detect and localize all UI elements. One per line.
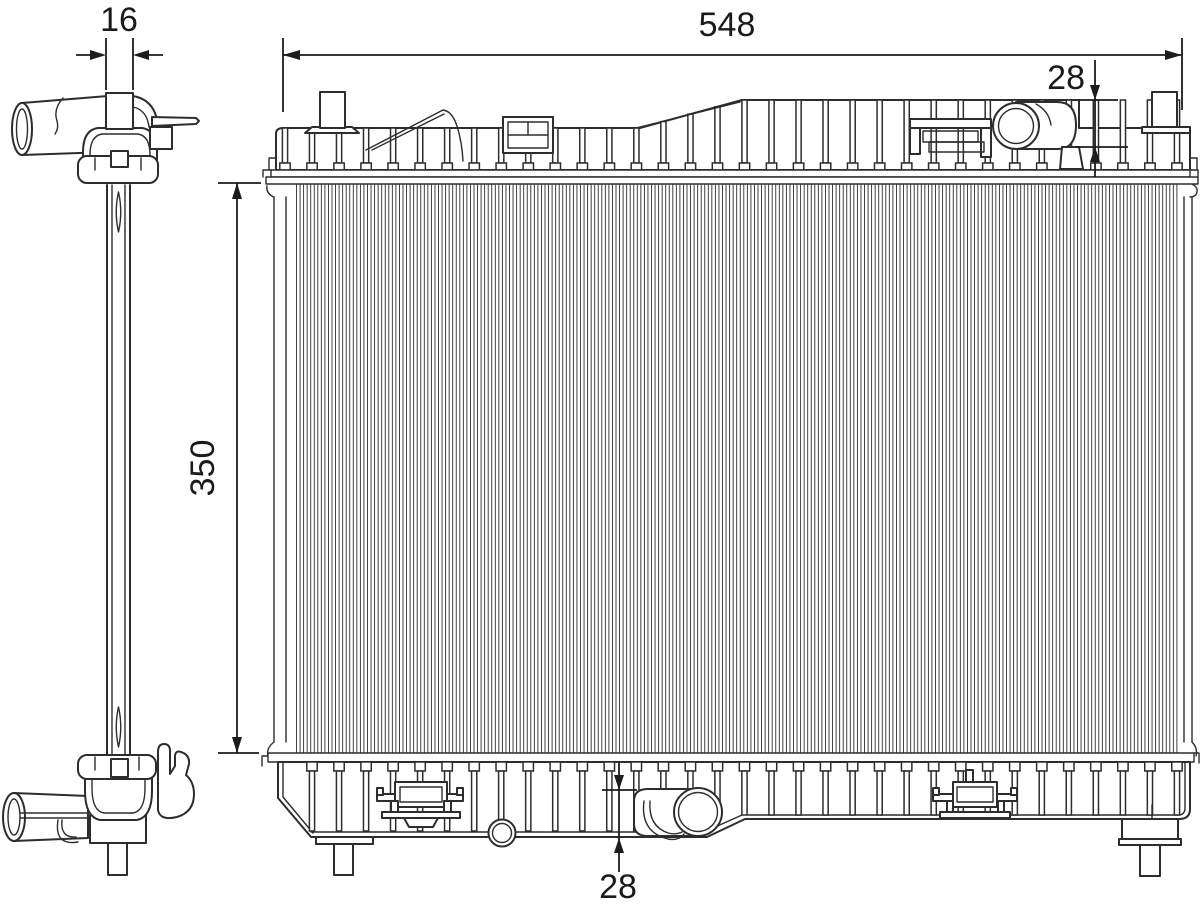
dim-label-28-bottom: 28 [599, 868, 637, 906]
top-tank [269, 92, 1197, 170]
bottom-tank [278, 762, 1190, 876]
side-fitting-block [150, 127, 172, 149]
drawing-canvas: 16 548 28 350 28 [0, 0, 1200, 908]
filler-neck-post [106, 93, 133, 129]
side-bracket-blade [152, 117, 199, 126]
lower-hose-port [3, 793, 88, 843]
dim-core-height: 350 [184, 183, 261, 753]
radiator-technical-drawing: 16 548 28 350 28 [0, 0, 1200, 908]
dim-label-16: 16 [100, 1, 138, 39]
lower-tank-dome [85, 777, 152, 820]
dim-label-350: 350 [184, 440, 222, 497]
dim-label-28-top: 28 [1047, 59, 1085, 97]
side-profile-body [107, 185, 130, 755]
outlet-pipe [634, 788, 722, 839]
lower-hook-bracket [158, 744, 194, 818]
dim-label-548: 548 [699, 6, 756, 44]
radiator-front-view [262, 92, 1199, 876]
drain-plug [489, 820, 516, 847]
core-fins [297, 184, 1177, 753]
top-connector-box [503, 117, 553, 153]
dim-tank-depth: 16 [76, 1, 163, 90]
top-mount-tab-left [320, 92, 345, 128]
lower-clamp-band [78, 755, 156, 779]
upper-clamp-band [78, 151, 158, 183]
top-mount-tab-right [1152, 92, 1177, 127]
bottom-mount-foot-left [316, 837, 373, 875]
radiator-side-view [3, 93, 199, 875]
lower-mount-tab [108, 843, 127, 875]
